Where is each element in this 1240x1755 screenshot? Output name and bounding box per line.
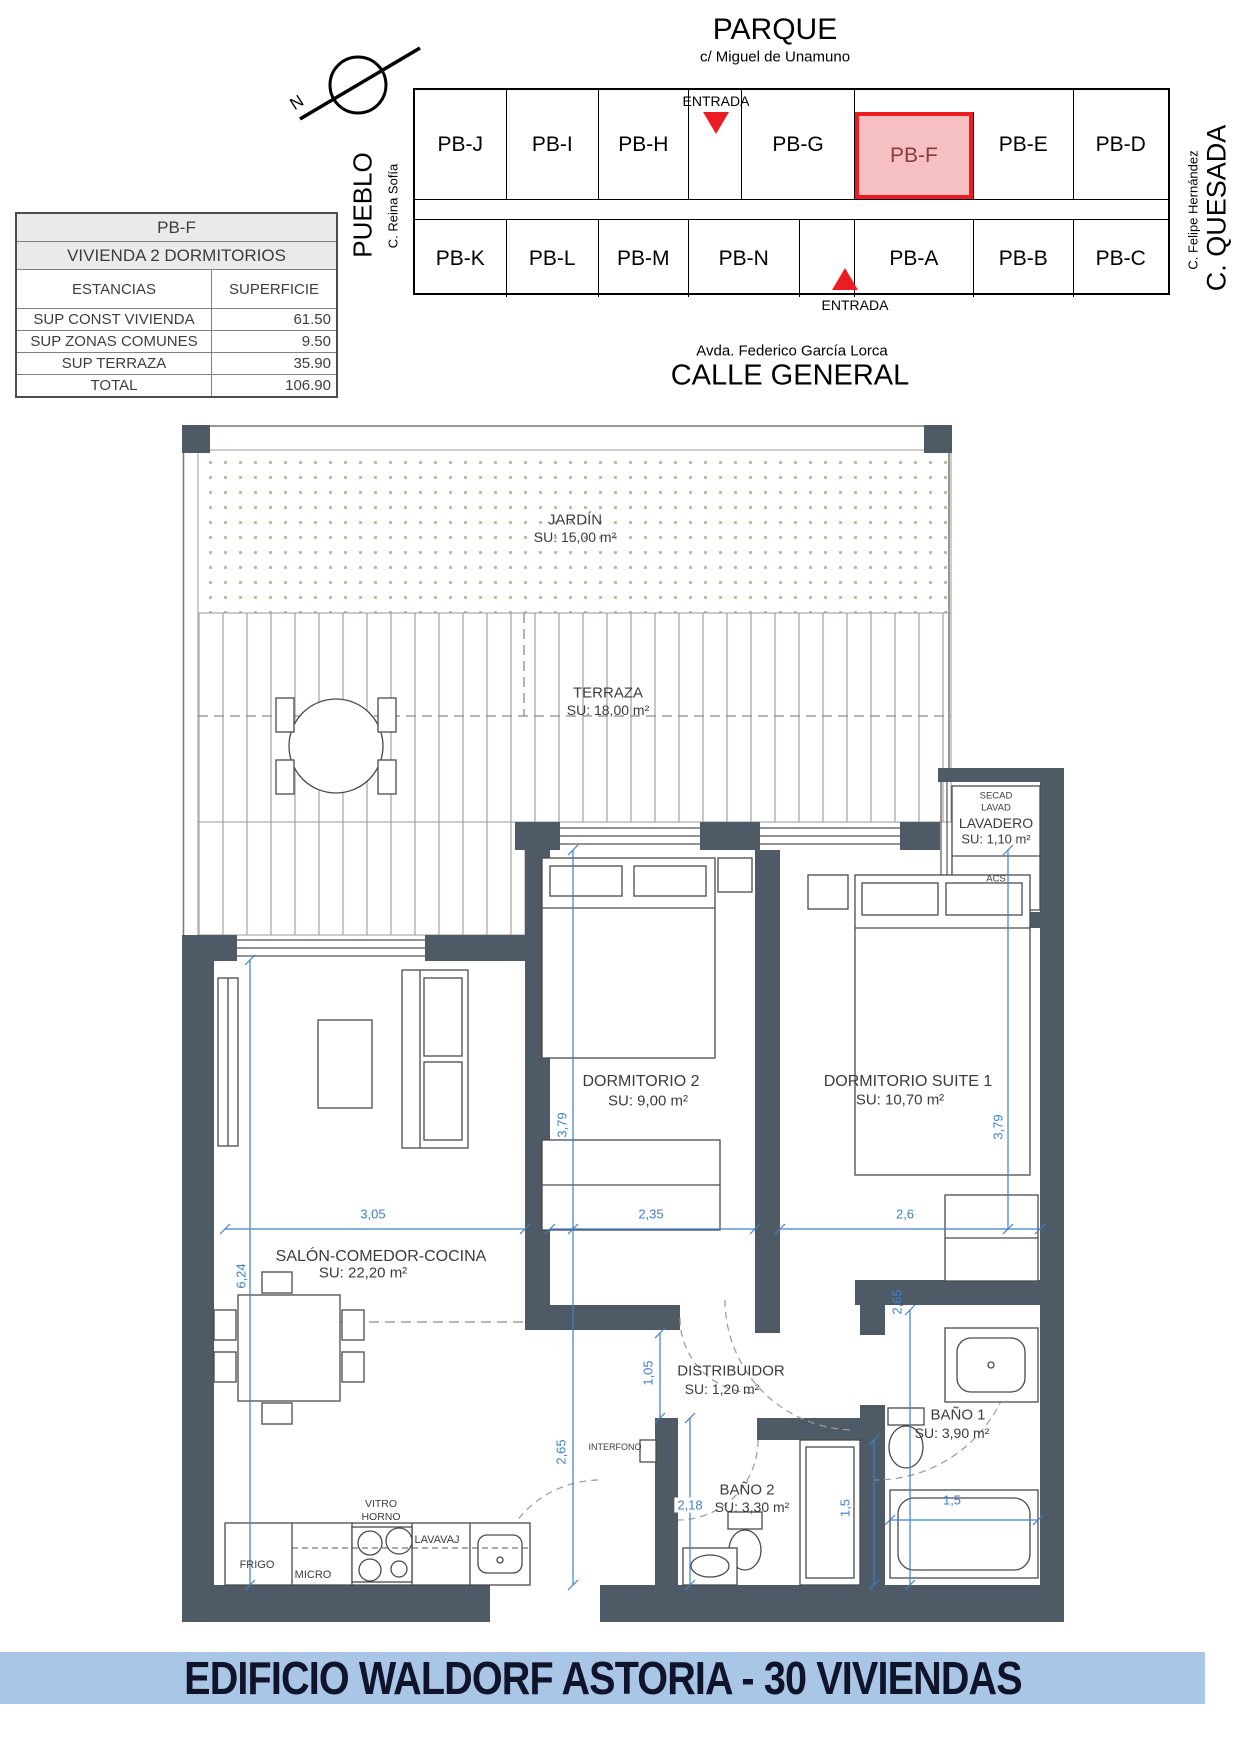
pueblo-label: PUEBLO: [348, 152, 379, 258]
jardin-name: JARDÍN: [548, 512, 602, 529]
row-label: TOTAL: [17, 375, 211, 396]
row-label: SUP ZONAS COMUNES: [17, 331, 211, 352]
jardin-area: SU: 15,00 m²: [534, 529, 616, 545]
terraza-name: TERRAZA: [573, 685, 643, 702]
dim-bano1-depth: 2,65: [890, 1289, 905, 1314]
micro-label: MICRO: [295, 1569, 332, 1581]
dormitorio2-area: SU: 9,00 m²: [608, 1093, 688, 1110]
col-superficie: SUPERFICIE: [211, 270, 336, 308]
row-label: SUP TERRAZA: [17, 353, 211, 374]
unit-type: VIVIENDA 2 DORMITORIOS: [17, 242, 336, 270]
dim-dorm2-depth: 3,79: [555, 1112, 570, 1137]
bano1-name: BAÑO 1: [930, 1407, 985, 1424]
row-value: 35.90: [211, 353, 336, 374]
table-row: TOTAL 106.90: [17, 375, 336, 396]
table-row: SUP ZONAS COMUNES 9.50: [17, 331, 336, 353]
horno-label: HORNO: [361, 1511, 400, 1523]
salon-area: SU: 22,20 m²: [319, 1265, 407, 1282]
suite-name: DORMITORIO SUITE 1: [824, 1073, 993, 1091]
table-row: SUP TERRAZA 35.90: [17, 353, 336, 375]
salon-name: SALÓN-COMEDOR-COCINA: [276, 1248, 487, 1266]
dormitorio2-name: DORMITORIO 2: [582, 1073, 699, 1091]
parque-label: PARQUE: [713, 13, 837, 47]
unit-summary-table: PB-F VIVIENDA 2 DORMITORIOS ESTANCIAS SU…: [15, 212, 338, 398]
project-title: EDIFICIO WALDORF ASTORIA - 30 VIVIENDAS: [184, 1651, 1022, 1705]
calle-general-label: CALLE GENERAL: [671, 360, 910, 393]
row-label: SUP CONST VIVIENDA: [17, 309, 211, 330]
street-top-label: c/ Miguel de Unamuno: [700, 49, 850, 66]
quesada-label: C. QUESADA: [1202, 125, 1233, 292]
bano2-name: BAÑO 2: [719, 1482, 774, 1499]
lavavaj-label: LAVAVAJ: [414, 1534, 459, 1546]
dim-dorm2-width: 2,35: [638, 1207, 663, 1222]
vitro-label: VITRO: [365, 1498, 397, 1510]
entrada-bottom-label: ENTRADA: [822, 297, 889, 313]
interfono-label: INTERFONO: [589, 1442, 642, 1452]
felipe-hernandez-label: C. Felipe Hernández: [1186, 150, 1201, 269]
lavadero-secad: SECAD: [980, 791, 1013, 802]
row-value: 106.90: [211, 375, 336, 396]
lavadero-lavad: LAVAD: [981, 803, 1011, 814]
dim-salon-lower-depth: 2,65: [554, 1439, 569, 1464]
plan-sheet: PARQUE c/ Miguel de Unamuno ENTRADA ENTR…: [0, 0, 1240, 1755]
col-estancias: ESTANCIAS: [17, 270, 211, 308]
bano1-area: SU: 3,90 m²: [915, 1425, 990, 1441]
dim-distribuidor-depth: 1,05: [641, 1360, 656, 1385]
bano2-area: SU: 3,30 m²: [715, 1499, 790, 1515]
dim-salon-width: 3,05: [360, 1207, 385, 1222]
table-row: SUP CONST VIVIENDA 61.50: [17, 309, 336, 331]
dim-suite-width: 2,6: [896, 1207, 914, 1222]
entrance-arrow-top: [703, 112, 729, 134]
dim-bano2-width: 1,5: [838, 1499, 853, 1517]
row-value: 61.50: [211, 309, 336, 330]
entrada-top-label: ENTRADA: [683, 93, 750, 109]
terraza-area: SU: 18,00 m²: [567, 702, 649, 718]
lavadero-area: SU: 1,10 m²: [961, 832, 1030, 847]
distribuidor-name: DISTRIBUIDOR: [677, 1363, 785, 1380]
dim-bano1-width: 1,5: [943, 1493, 961, 1508]
dim-salon-depth: 6,24: [234, 1263, 249, 1288]
unit-id: PB-F: [17, 214, 336, 242]
reina-sofia-label: C. Reina Sofía: [386, 164, 401, 249]
row-value: 9.50: [211, 331, 336, 352]
lavadero-acs: ACS: [986, 874, 1006, 885]
suite-area: SU: 10,70 m²: [856, 1092, 944, 1109]
table-header: ESTANCIAS SUPERFICIE: [17, 270, 336, 309]
frigo-label: FRIGO: [240, 1559, 275, 1571]
distribuidor-area: SU: 1,20 m²: [685, 1381, 760, 1397]
project-title-banner: EDIFICIO WALDORF ASTORIA - 30 VIVIENDAS: [0, 1652, 1205, 1704]
lavadero-name: LAVADERO: [959, 815, 1033, 831]
dim-bano2-depth: 2,18: [674, 1498, 705, 1513]
dim-suite-depth: 3,79: [991, 1114, 1006, 1139]
entrance-arrow-bottom: [832, 268, 858, 290]
street-bottom-label: Avda. Federico García Lorca: [696, 343, 887, 360]
